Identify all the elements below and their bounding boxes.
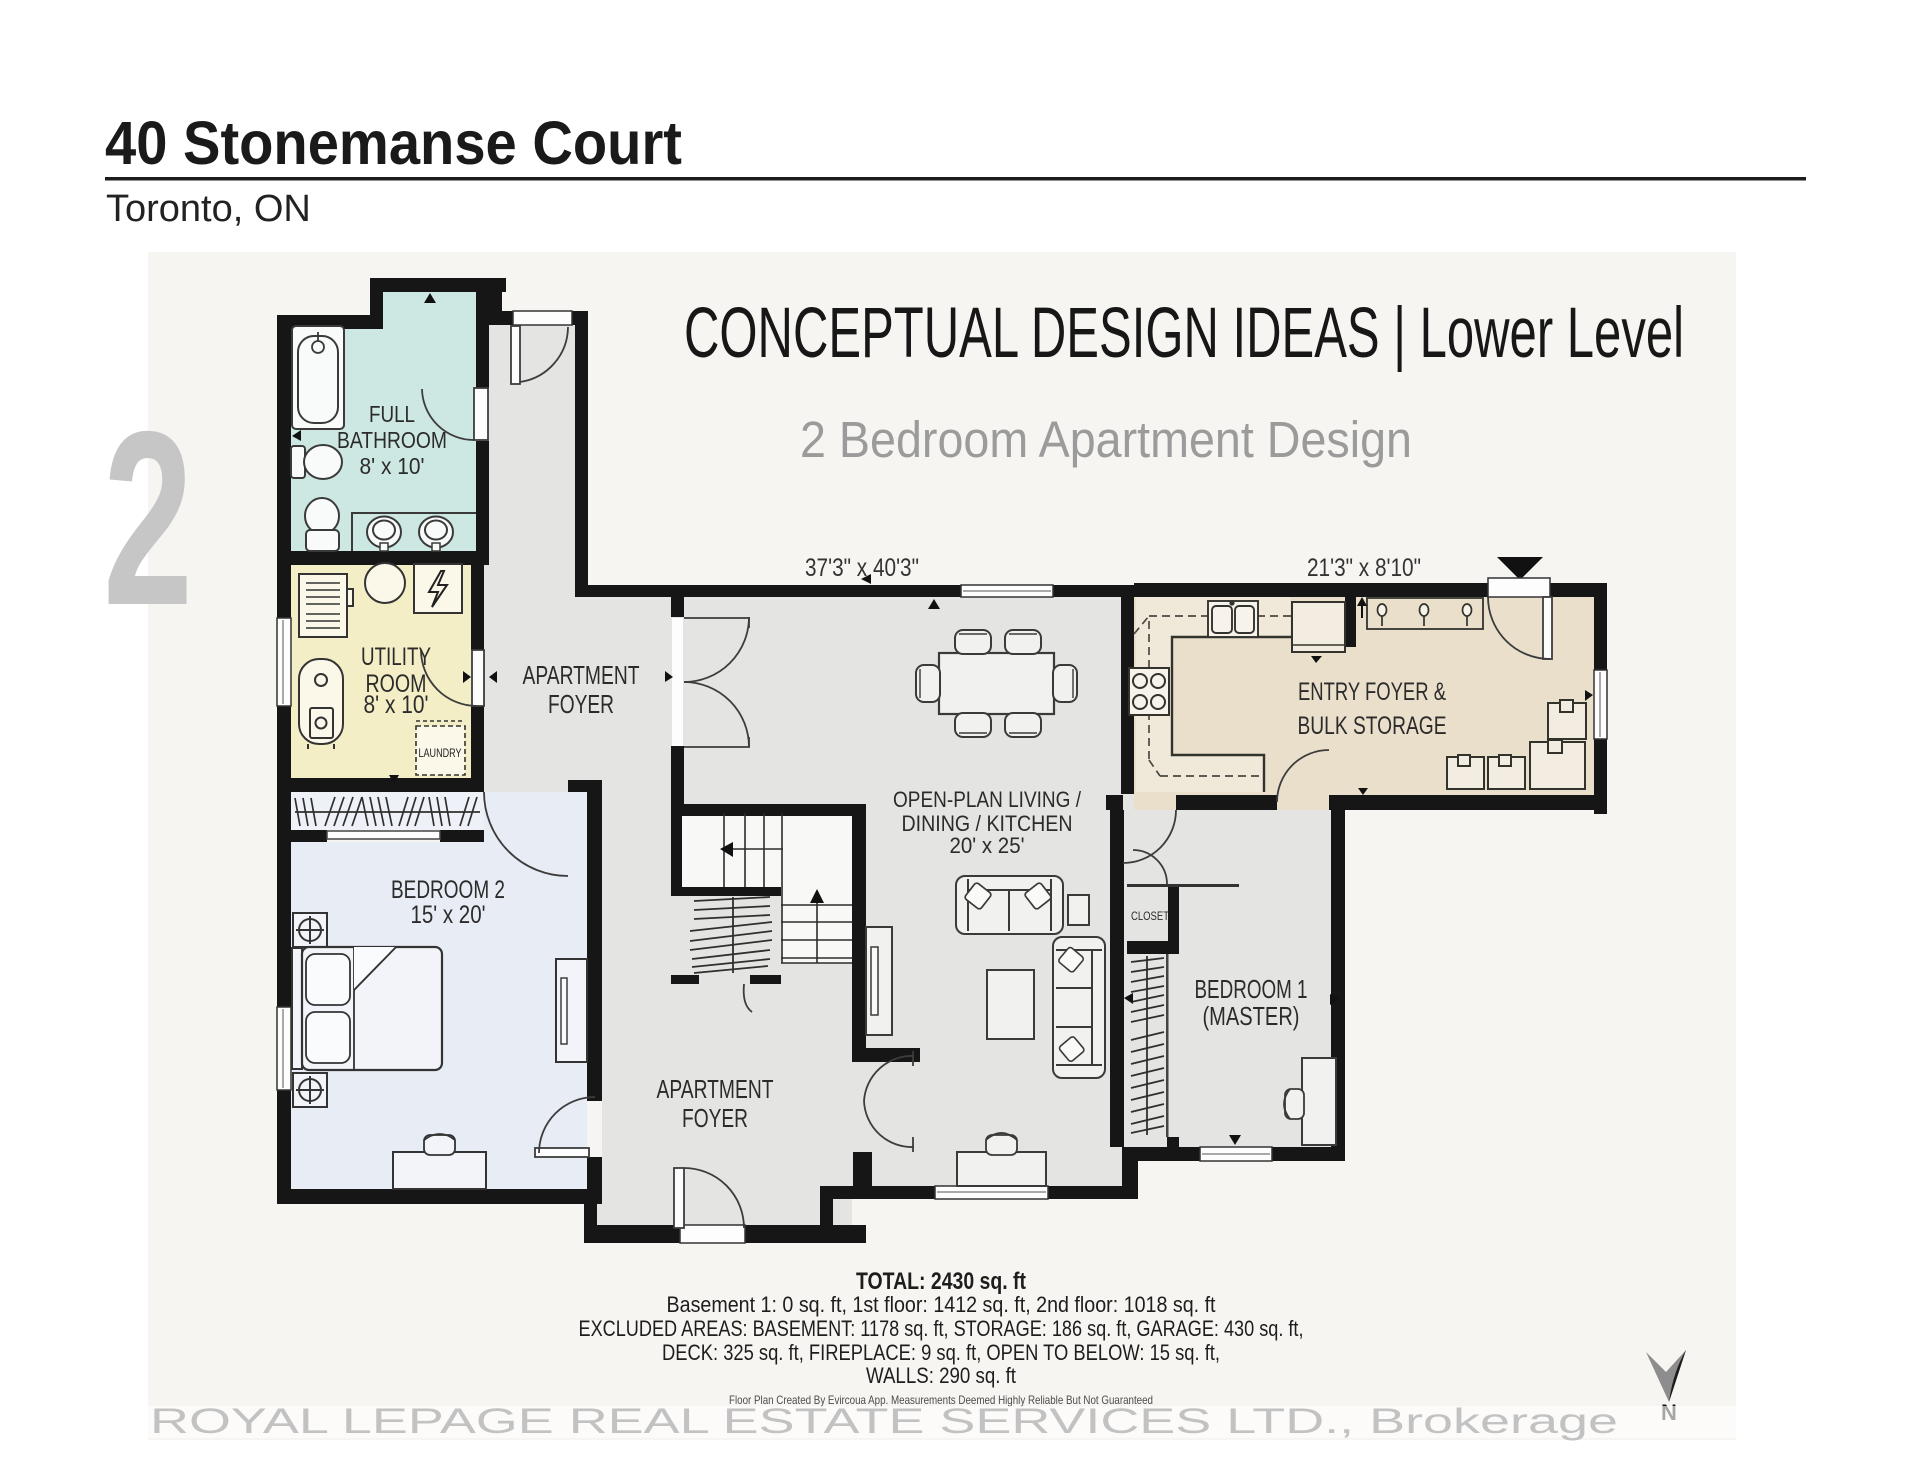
svg-text:2 Bedroom Apartment Design: 2 Bedroom Apartment Design	[800, 411, 1412, 468]
svg-text:FOYER: FOYER	[548, 689, 614, 719]
svg-text:BEDROOM 1: BEDROOM 1	[1195, 974, 1308, 1004]
svg-text:FOYER: FOYER	[682, 1103, 748, 1133]
svg-text:40 Stonemanse Court: 40 Stonemanse Court	[105, 109, 682, 177]
svg-text:8' x 10': 8' x 10'	[364, 691, 429, 719]
svg-text:OPEN-PLAN LIVING /: OPEN-PLAN LIVING /	[893, 787, 1082, 812]
svg-text:CLOSET: CLOSET	[1131, 911, 1169, 923]
svg-text:2: 2	[103, 379, 193, 657]
svg-text:20' x 25': 20' x 25'	[950, 833, 1025, 858]
svg-text:8' x 10': 8' x 10'	[360, 453, 425, 479]
svg-text:TOTAL: 2430 sq. ft: TOTAL: 2430 sq. ft	[856, 1268, 1026, 1295]
svg-text:15' x 20': 15' x 20'	[411, 901, 486, 929]
svg-text:DECK: 325 sq. ft, FIREPLACE: 9: DECK: 325 sq. ft, FIREPLACE: 9 sq. ft, O…	[662, 1340, 1220, 1365]
svg-text:Basement 1: 0 sq. ft, 1st floo: Basement 1: 0 sq. ft, 1st floor: 1412 sq…	[667, 1292, 1216, 1317]
svg-text:ENTRY FOYER &: ENTRY FOYER &	[1298, 678, 1446, 706]
svg-text:BULK STORAGE: BULK STORAGE	[1298, 712, 1447, 740]
svg-text:UTILITY: UTILITY	[361, 643, 431, 671]
svg-text:21'3" x 8'10": 21'3" x 8'10"	[1307, 554, 1421, 582]
svg-text:EXCLUDED AREAS: BASEMENT: 1178: EXCLUDED AREAS: BASEMENT: 1178 sq. ft, S…	[579, 1316, 1304, 1341]
svg-text:37'3" x 40'3": 37'3" x 40'3"	[805, 554, 919, 582]
svg-text:CONCEPTUAL DESIGN IDEAS | Lowe: CONCEPTUAL DESIGN IDEAS | Lower Level	[684, 294, 1684, 373]
svg-text:APARTMENT: APARTMENT	[523, 660, 640, 690]
svg-text:Toronto, ON: Toronto, ON	[106, 188, 311, 230]
svg-text:APARTMENT: APARTMENT	[657, 1074, 774, 1104]
svg-text:LAUNDRY: LAUNDRY	[419, 748, 462, 760]
svg-text:WALLS: 290 sq. ft: WALLS: 290 sq. ft	[866, 1363, 1016, 1388]
svg-text:BEDROOM 2: BEDROOM 2	[391, 876, 505, 904]
svg-text:FULL: FULL	[369, 401, 415, 427]
svg-text:ROYAL LEPAGE REAL ESTATE SERVI: ROYAL LEPAGE REAL ESTATE SERVICES LTD., …	[150, 1402, 1618, 1441]
svg-text:BATHROOM: BATHROOM	[337, 427, 447, 453]
svg-text:(MASTER): (MASTER)	[1203, 1001, 1300, 1031]
